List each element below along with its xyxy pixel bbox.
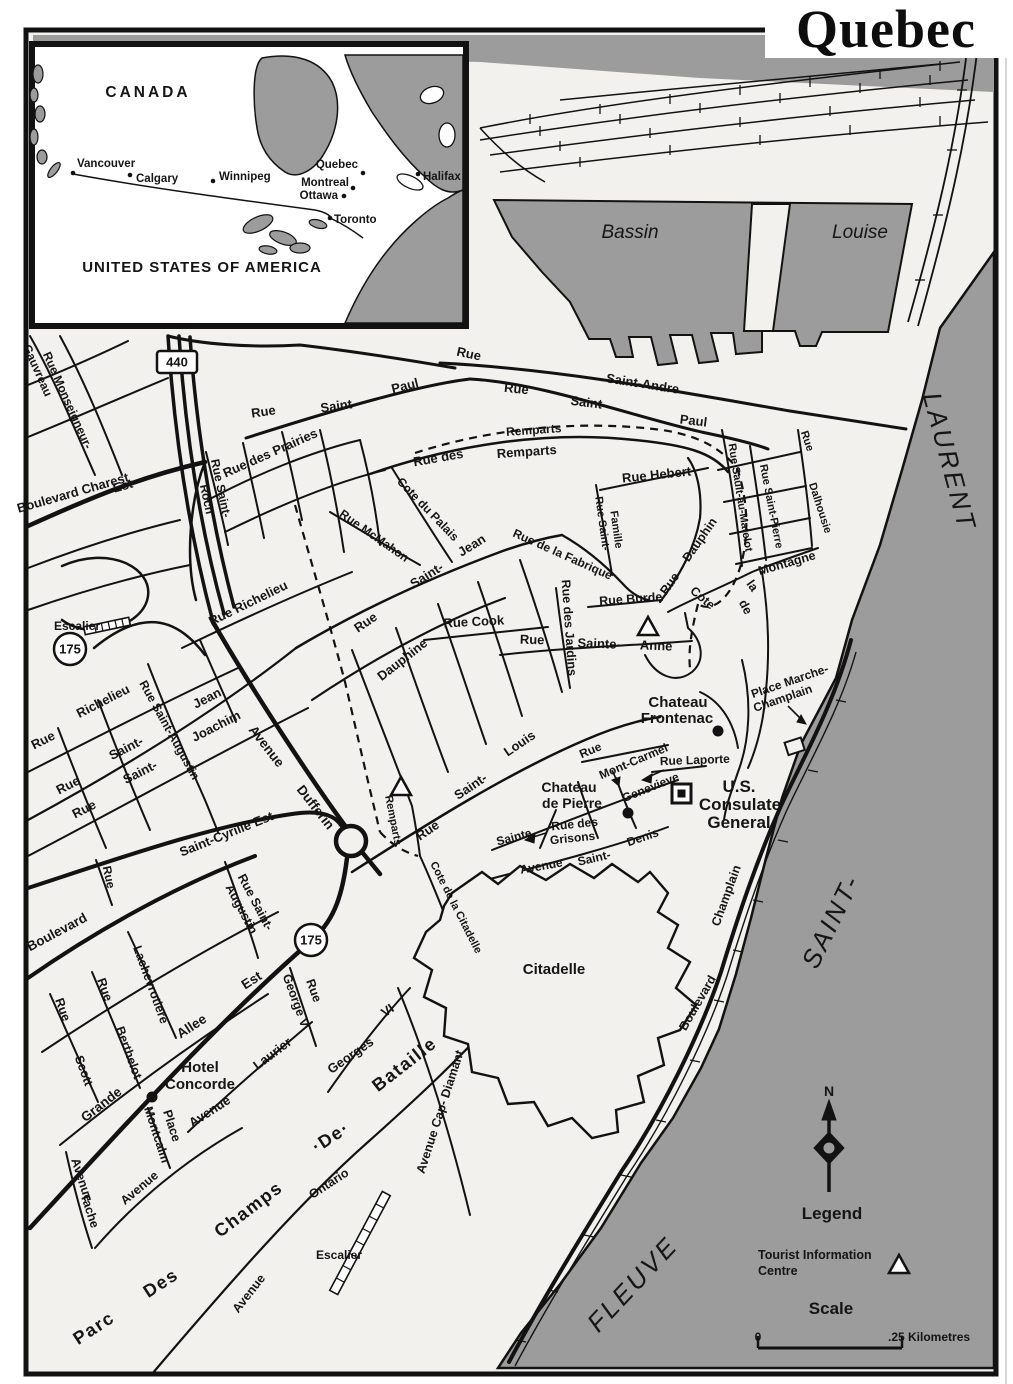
label-us-consulate-general: General (707, 813, 770, 832)
street-label: Rue Laporte (660, 752, 731, 768)
label-us-consulate-general: U.S. (722, 777, 755, 796)
map-title: Quebec (796, 0, 976, 59)
inset-city-label: Toronto (334, 214, 377, 226)
street-label: Anne (640, 637, 673, 653)
inset-city-toronto: Toronto (328, 214, 377, 226)
inset-city-calgary: Calgary (128, 173, 179, 185)
inset-city-halifax: Halifax (416, 171, 462, 183)
street-label: Escalier (316, 1248, 362, 1262)
poi-us-consulate-general (672, 784, 691, 803)
legend-title: Legend (802, 1204, 862, 1223)
legend-item-tourist-2: Centre (758, 1264, 798, 1278)
inset-city-label: Ottawa (300, 190, 339, 202)
inset-city-label: Montreal (301, 177, 349, 189)
route-shield-175: 175 (54, 633, 86, 665)
legend-scale-title: Scale (809, 1299, 853, 1318)
route-shield-label: 175 (300, 933, 322, 948)
water-label-bassin: Bassin (601, 222, 658, 243)
label-chateau-de-pierre: Chateau (541, 779, 596, 795)
street-label: Rue (520, 632, 545, 648)
inset-city-label: Winnipeg (219, 171, 271, 183)
inset-city-winnipeg: Winnipeg (211, 171, 271, 183)
water-label-louise: Louise (832, 222, 888, 243)
scale-start: 0 (755, 1330, 762, 1344)
poi-chateau-de-pierre (623, 808, 634, 819)
roundabout (336, 826, 366, 856)
label-chateau-frontenac: Chateau (648, 694, 707, 711)
north-label: N (824, 1083, 834, 1099)
poi-chateau-frontenac (713, 726, 724, 737)
inset-country-usa: UNITED STATES OF AMERICA (82, 259, 322, 276)
inset-country-canada: CANADA (105, 84, 190, 101)
street-label: Escalier (54, 619, 100, 633)
inset-city-label: Calgary (136, 173, 179, 185)
inset-city-label: Vancouver (77, 158, 136, 170)
legend-item-tourist: Tourist Information (758, 1248, 872, 1262)
inset-city-label: Quebec (316, 159, 359, 171)
street-label: Rue Cook (443, 612, 505, 630)
route-shield-label: 440 (166, 355, 188, 370)
street-label: Sainte- (577, 635, 621, 652)
inset-city-montreal: Montreal (301, 177, 355, 190)
label-hotel-concorde: Hotel (181, 1059, 219, 1076)
inset-city-label: Halifax (423, 171, 461, 183)
canada-inset: CANADA UNITED STATES OF AMERICA Vancouve… (30, 44, 466, 326)
map-title-block: Quebec (765, 0, 1013, 59)
label-chateau-frontenac: Frontenac (641, 710, 714, 727)
route-shield-175: 175 (295, 924, 327, 956)
label-chateau-de-pierre: de Pierre (542, 795, 602, 811)
label-citadelle: Citadelle (523, 961, 586, 978)
label-us-consulate-general: Consulate (699, 795, 781, 814)
street-label: Rue (503, 380, 529, 397)
route-shield-label: 175 (59, 642, 81, 657)
route-shield-440: 440 (157, 351, 197, 373)
quebec-map: CANADA UNITED STATES OF AMERICA Vancouve… (0, 0, 1013, 1384)
label-hotel-concorde: Concorde (165, 1076, 235, 1093)
poi-hotel-concorde (147, 1092, 158, 1103)
scale-end: .25 Kilometres (888, 1330, 970, 1344)
